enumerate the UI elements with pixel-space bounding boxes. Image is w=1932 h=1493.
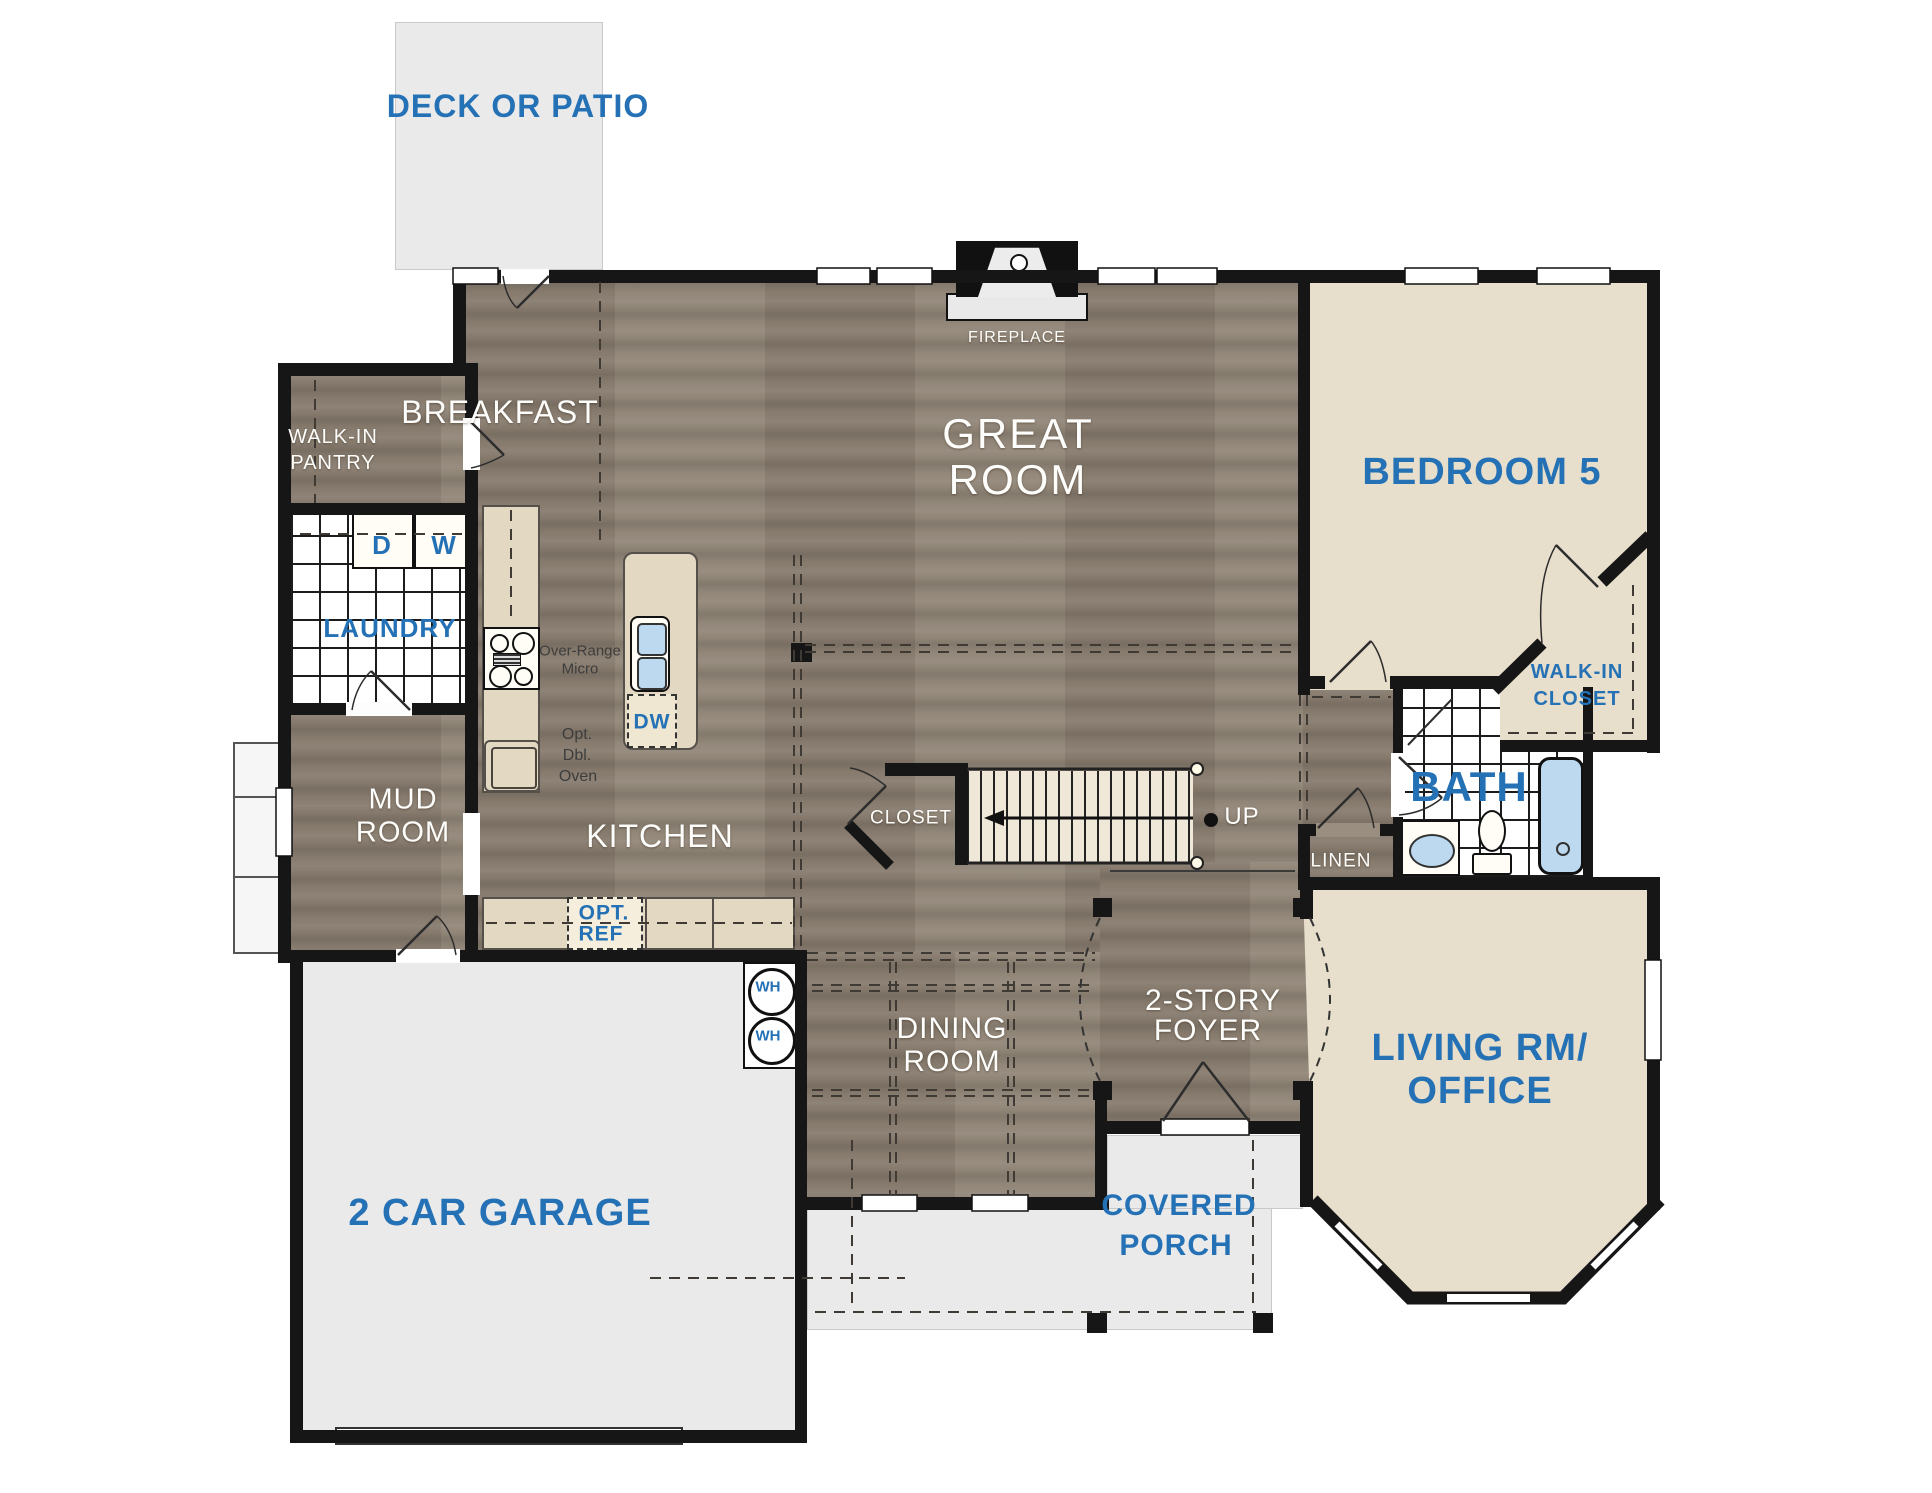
foyer-label: 2-STORY <box>1145 986 1281 1016</box>
foyer-label: FOYER <box>1154 1016 1262 1046</box>
covered-porch-label: COVERED <box>1101 1191 1256 1221</box>
plan-linework <box>0 0 1932 1493</box>
walk-in-closet-label: CLOSET <box>1533 689 1620 709</box>
closet-label: CLOSET <box>870 809 952 828</box>
mud-room-label: MUD <box>368 786 437 815</box>
opt-dbl-oven-label: Dbl. <box>563 748 591 764</box>
over-range-micro-label: Micro <box>562 662 599 677</box>
covered-porch-label: PORCH <box>1119 1231 1232 1261</box>
dishwasher-label: DW <box>634 712 671 733</box>
shower-door <box>1408 699 1452 745</box>
opt-dbl-oven-label: Oven <box>559 769 597 785</box>
living-office-label: LIVING RM/ <box>1372 1029 1589 1067</box>
dining-room-label: DINING <box>897 1014 1008 1044</box>
opt-ref-label: OPT. <box>579 903 630 924</box>
opt-dbl-oven-label: Opt. <box>562 727 592 743</box>
kitchen-label: KITCHEN <box>586 820 733 852</box>
laundry-label: LAUNDRY <box>323 615 456 641</box>
water-heater-label: WH <box>756 1029 781 1044</box>
fireplace-label: FIREPLACE <box>968 330 1066 346</box>
deck-label: DECK OR PATIO <box>387 90 649 122</box>
opt-ref-label: REF <box>579 924 624 945</box>
washer-label: W <box>431 532 457 558</box>
walk-in-closet-label: WALK-IN <box>1531 662 1624 682</box>
linen-label: LINEN <box>1311 852 1372 871</box>
living-office-label: OFFICE <box>1407 1072 1552 1110</box>
water-heater-label: WH <box>756 980 781 995</box>
great-room-label: ROOM <box>949 459 1088 501</box>
dining-room-label: ROOM <box>903 1047 1000 1077</box>
dryer-label: D <box>372 532 392 558</box>
bedroom5-label: BEDROOM 5 <box>1362 453 1601 491</box>
walk-in-pantry-label: PANTRY <box>290 453 375 473</box>
breakfast-label: BREAKFAST <box>401 396 599 428</box>
floor-plan: DECK OR PATIO BREAKFAST GREAT ROOM FIREP… <box>0 0 1932 1493</box>
over-range-micro-label: Over-Range <box>539 644 621 659</box>
great-room-label: GREAT <box>942 413 1094 455</box>
walk-in-pantry-label: WALK-IN <box>288 427 378 447</box>
garage-label: 2 CAR GARAGE <box>348 1194 651 1232</box>
mud-room-label: ROOM <box>356 819 450 848</box>
bath-label: BATH <box>1410 766 1528 808</box>
stairs-up-label: UP <box>1224 805 1259 829</box>
